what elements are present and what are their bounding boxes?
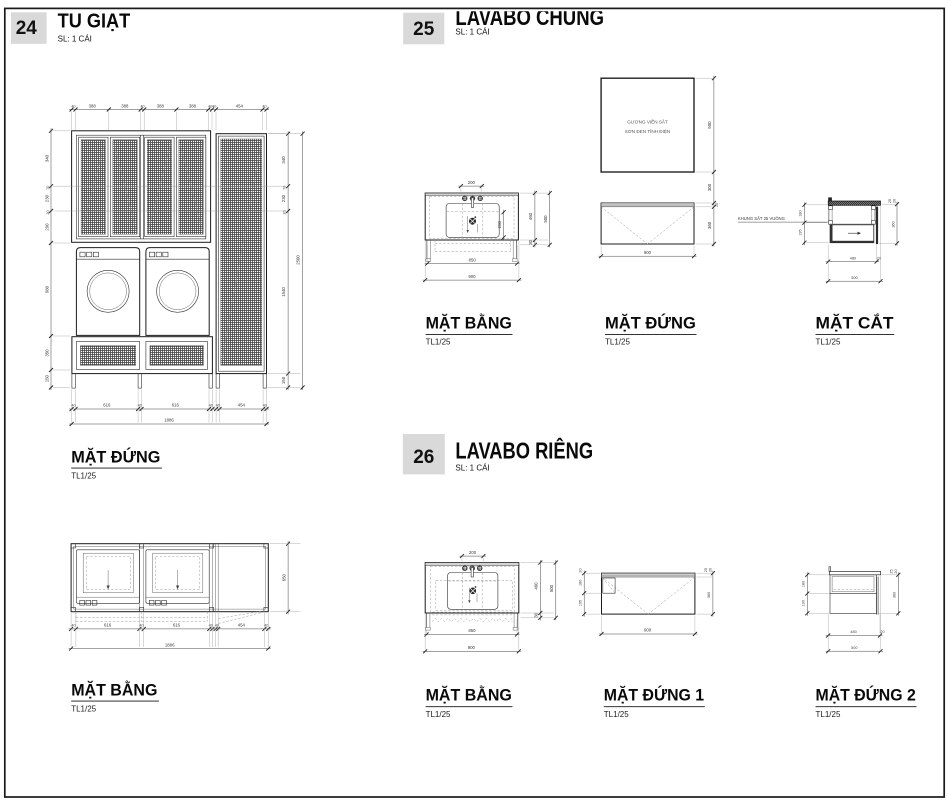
- svg-text:460: 460: [528, 212, 533, 220]
- svg-text:26: 26: [413, 447, 434, 468]
- svg-text:SL: 1 CÁI: SL: 1 CÁI: [58, 34, 92, 44]
- svg-text:388: 388: [89, 103, 97, 108]
- svg-text:388: 388: [121, 103, 129, 108]
- svg-text:MẶT ĐỨNG 2: MẶT ĐỨNG 2: [816, 686, 916, 705]
- svg-text:40: 40: [71, 624, 75, 628]
- svg-text:40: 40: [215, 624, 219, 628]
- svg-text:340: 340: [281, 156, 286, 164]
- svg-text:500: 500: [851, 276, 857, 280]
- svg-text:460: 460: [534, 582, 539, 590]
- svg-text:200: 200: [469, 550, 477, 555]
- svg-text:454: 454: [238, 403, 246, 408]
- svg-text:388: 388: [189, 103, 197, 108]
- svg-text:980: 980: [45, 285, 50, 293]
- svg-text:1886: 1886: [165, 642, 175, 647]
- svg-text:30: 30: [528, 239, 533, 244]
- svg-text:20: 20: [715, 203, 719, 207]
- svg-text:MẶT BẰNG: MẶT BẰNG: [71, 681, 157, 700]
- svg-text:SL: 1 CÁI: SL: 1 CÁI: [455, 27, 489, 37]
- svg-text:40: 40: [264, 624, 268, 628]
- svg-text:250: 250: [497, 221, 502, 229]
- svg-text:20: 20: [579, 568, 583, 572]
- svg-text:500: 500: [543, 215, 548, 223]
- svg-text:MẶT BẰNG: MẶT BẰNG: [426, 313, 512, 332]
- svg-text:25: 25: [888, 199, 892, 203]
- svg-text:TL1/25: TL1/25: [604, 710, 629, 719]
- svg-text:TL1/25: TL1/25: [605, 337, 630, 346]
- svg-text:360: 360: [891, 221, 895, 227]
- svg-text:350: 350: [45, 349, 50, 357]
- svg-text:360: 360: [707, 221, 712, 229]
- svg-text:290: 290: [45, 223, 50, 231]
- svg-text:1540: 1540: [281, 287, 286, 297]
- svg-text:900: 900: [644, 250, 652, 255]
- svg-text:40: 40: [212, 105, 216, 109]
- svg-text:230: 230: [281, 194, 286, 202]
- svg-text:40: 40: [263, 404, 267, 408]
- svg-text:616: 616: [172, 403, 180, 408]
- svg-text:900: 900: [707, 121, 712, 129]
- svg-text:850: 850: [468, 628, 476, 633]
- svg-text:20: 20: [282, 210, 286, 214]
- svg-text:MẶT BẰNG: MẶT BẰNG: [426, 686, 512, 705]
- svg-text:616: 616: [173, 623, 181, 628]
- svg-text:190: 190: [802, 600, 806, 606]
- svg-text:TL1/25: TL1/25: [816, 337, 841, 346]
- svg-text:40: 40: [138, 404, 142, 408]
- svg-text:MẶT CẮT: MẶT CẮT: [816, 313, 894, 332]
- svg-text:360: 360: [707, 592, 711, 598]
- svg-text:40: 40: [262, 105, 266, 109]
- svg-text:1886: 1886: [164, 418, 174, 423]
- svg-text:650: 650: [281, 574, 286, 582]
- svg-text:180: 180: [799, 210, 803, 216]
- svg-text:180: 180: [802, 581, 806, 587]
- svg-text:230: 230: [45, 194, 50, 202]
- svg-text:40: 40: [71, 404, 75, 408]
- svg-text:70: 70: [282, 186, 286, 190]
- svg-text:TL1/25: TL1/25: [71, 472, 96, 481]
- svg-text:40: 40: [209, 404, 213, 408]
- svg-text:300: 300: [707, 183, 712, 191]
- svg-text:20: 20: [46, 210, 50, 214]
- svg-text:480: 480: [850, 630, 856, 634]
- svg-text:70: 70: [46, 186, 50, 190]
- svg-text:360: 360: [893, 592, 897, 598]
- svg-text:150: 150: [45, 375, 50, 383]
- svg-text:616: 616: [104, 623, 112, 628]
- svg-text:20: 20: [894, 569, 898, 573]
- svg-text:150: 150: [281, 376, 286, 384]
- svg-text:25: 25: [413, 19, 435, 40]
- svg-text:900: 900: [468, 645, 476, 650]
- svg-text:500: 500: [851, 646, 857, 650]
- svg-text:KHUNG SẮT 25 VUÔNG: KHUNG SẮT 25 VUÔNG: [738, 216, 786, 221]
- svg-text:850: 850: [469, 257, 477, 262]
- svg-text:30: 30: [534, 612, 539, 617]
- svg-text:TL1/25: TL1/25: [426, 337, 451, 346]
- svg-text:900: 900: [644, 628, 652, 633]
- svg-text:MẶT ĐỨNG 1: MẶT ĐỨNG 1: [604, 686, 704, 705]
- svg-text:180: 180: [579, 580, 583, 586]
- svg-text:20: 20: [880, 630, 884, 634]
- svg-text:454: 454: [236, 103, 244, 108]
- svg-text:24: 24: [16, 18, 38, 39]
- svg-text:TL1/25: TL1/25: [426, 710, 451, 719]
- svg-text:LAVABO RIÊNG: LAVABO RIÊNG: [455, 436, 593, 463]
- svg-text:40: 40: [140, 105, 144, 109]
- svg-text:GƯƠNG VIỀN SẮT: GƯƠNG VIỀN SẮT: [627, 118, 668, 125]
- svg-text:900: 900: [468, 274, 476, 279]
- svg-text:MẶT ĐỨNG: MẶT ĐỨNG: [605, 313, 696, 332]
- svg-text:TU GIẠT: TU GIẠT: [58, 11, 131, 33]
- svg-text:25: 25: [890, 569, 894, 573]
- svg-text:40: 40: [71, 105, 75, 109]
- svg-text:480: 480: [850, 256, 856, 260]
- svg-text:40: 40: [216, 404, 220, 408]
- svg-text:SƠN ĐEN TĨNH ĐIỆN: SƠN ĐEN TĨNH ĐIỆN: [625, 127, 670, 134]
- svg-text:MẶT ĐỨNG: MẶT ĐỨNG: [71, 448, 160, 467]
- svg-text:20: 20: [893, 199, 897, 203]
- svg-text:SL: 1 CÁI: SL: 1 CÁI: [455, 463, 489, 473]
- svg-text:500: 500: [549, 584, 554, 592]
- svg-text:388: 388: [157, 103, 165, 108]
- svg-text:25: 25: [704, 568, 708, 572]
- svg-text:616: 616: [103, 403, 111, 408]
- svg-text:340: 340: [45, 154, 50, 162]
- svg-text:195: 195: [799, 229, 803, 235]
- svg-text:200: 200: [468, 180, 476, 185]
- svg-text:TL1/25: TL1/25: [71, 705, 96, 714]
- svg-text:454: 454: [238, 623, 246, 628]
- svg-text:40: 40: [139, 624, 143, 628]
- svg-text:195: 195: [579, 600, 583, 606]
- svg-text:2500: 2500: [296, 255, 301, 265]
- svg-text:20: 20: [709, 568, 713, 572]
- svg-text:TL1/25: TL1/25: [816, 710, 841, 719]
